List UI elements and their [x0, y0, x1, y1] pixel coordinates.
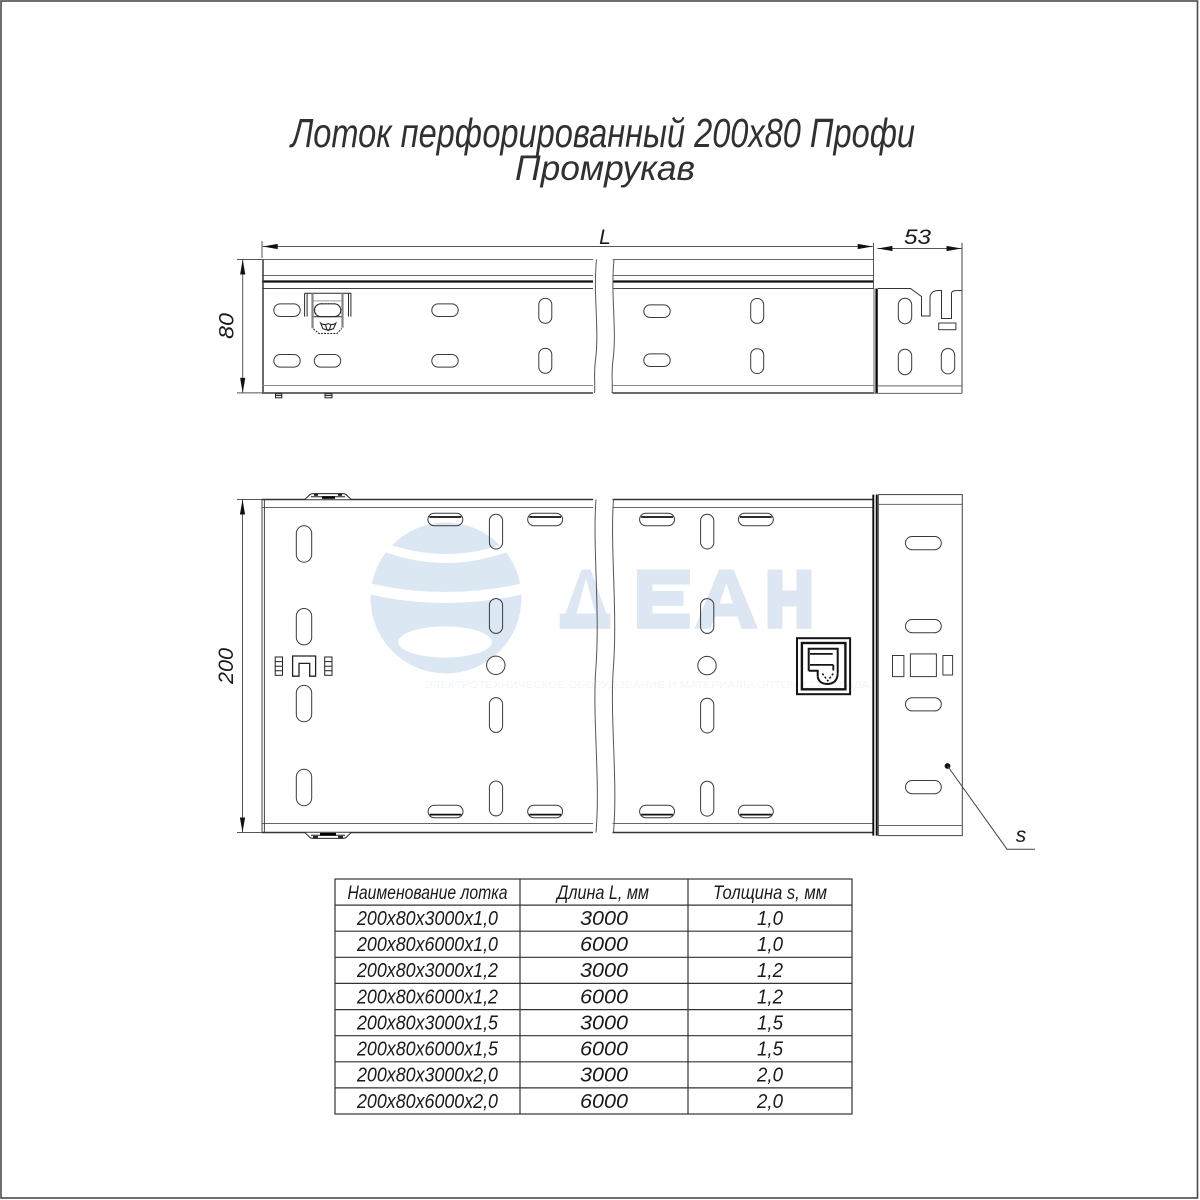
svg-text:1,2: 1,2 — [757, 986, 783, 1008]
svg-text:1,5: 1,5 — [757, 1013, 784, 1035]
svg-text:6000: 6000 — [580, 1039, 628, 1061]
svg-text:200х80х6000х1,5: 200х80х6000х1,5 — [356, 1039, 499, 1061]
svg-text:3000: 3000 — [580, 1065, 628, 1087]
svg-text:6000: 6000 — [580, 986, 628, 1008]
svg-text:3000: 3000 — [580, 908, 628, 930]
svg-text:2,0: 2,0 — [756, 1065, 783, 1087]
svg-text:200х80х6000х1,0: 200х80х6000х1,0 — [356, 934, 498, 956]
svg-text:1,5: 1,5 — [757, 1039, 784, 1061]
svg-text:200х80х6000х1,2: 200х80х6000х1,2 — [356, 986, 498, 1008]
svg-text:80: 80 — [216, 313, 239, 339]
svg-text:Длина L, мм: Длина L, мм — [555, 882, 649, 904]
svg-text:1,2: 1,2 — [757, 960, 783, 982]
svg-text:Толщина s, мм: Толщина s, мм — [713, 882, 827, 904]
svg-text:1,0: 1,0 — [757, 908, 783, 930]
svg-text:6000: 6000 — [580, 1091, 628, 1113]
svg-text:s: s — [1016, 824, 1027, 847]
svg-text:200х80х3000х1,5: 200х80х3000х1,5 — [356, 1013, 499, 1035]
svg-text:53: 53 — [904, 226, 931, 249]
svg-text:3000: 3000 — [580, 960, 628, 982]
svg-text:3000: 3000 — [580, 1013, 628, 1035]
svg-text:1,0: 1,0 — [757, 934, 783, 956]
svg-text:L: L — [599, 226, 611, 249]
svg-text:Наименование лотка: Наименование лотка — [348, 882, 508, 904]
svg-text:200х80х6000х2,0: 200х80х6000х2,0 — [356, 1091, 498, 1113]
svg-text:200х80х3000х1,0: 200х80х3000х1,0 — [356, 908, 498, 930]
svg-text:2,0: 2,0 — [756, 1091, 783, 1113]
svg-text:200: 200 — [215, 648, 238, 685]
svg-text:Промрукав: Промрукав — [515, 149, 695, 188]
svg-text:200х80х3000х2,0: 200х80х3000х2,0 — [356, 1065, 498, 1087]
svg-text:6000: 6000 — [580, 934, 628, 956]
svg-text:200х80х3000х1,2: 200х80х3000х1,2 — [356, 960, 498, 982]
